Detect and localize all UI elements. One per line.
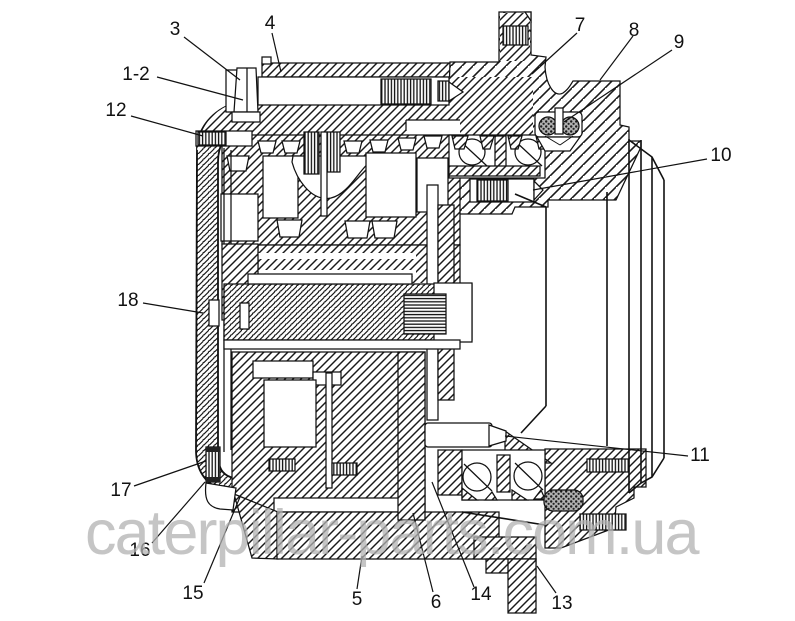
svg-text:15: 15 xyxy=(182,583,203,604)
svg-text:caterpillar-parts.com.ua: caterpillar-parts.com.ua xyxy=(85,498,701,568)
svg-text:14: 14 xyxy=(470,584,492,605)
svg-text:5: 5 xyxy=(352,589,363,610)
svg-text:7: 7 xyxy=(575,15,586,36)
svg-text:11: 11 xyxy=(690,445,710,466)
svg-text:4: 4 xyxy=(265,13,276,34)
svg-text:10: 10 xyxy=(710,145,731,166)
svg-text:8: 8 xyxy=(629,20,640,41)
svg-text:12: 12 xyxy=(105,100,126,121)
svg-text:1-2: 1-2 xyxy=(122,64,149,85)
svg-text:3: 3 xyxy=(170,19,181,40)
svg-text:18: 18 xyxy=(117,290,138,311)
svg-text:6: 6 xyxy=(431,592,442,613)
svg-text:13: 13 xyxy=(551,593,572,614)
svg-text:9: 9 xyxy=(674,32,685,53)
